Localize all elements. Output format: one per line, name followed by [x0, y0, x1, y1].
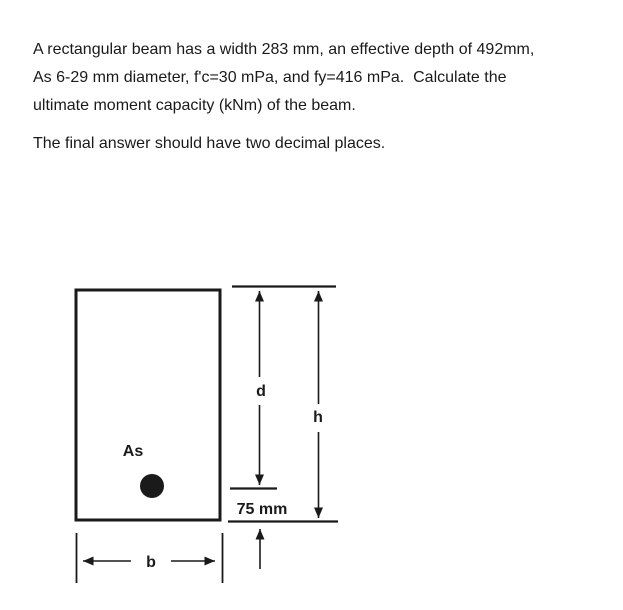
- beam-cross-section-figure: As d h 75 mm b: [0, 0, 623, 610]
- effective-depth-label: d: [256, 383, 266, 400]
- problem-page: A rectangular beam has a width 283 mm, a…: [0, 0, 623, 610]
- steel-area-label: As: [123, 443, 144, 460]
- overall-height-label: h: [313, 409, 323, 426]
- cover-label: 75 mm: [237, 501, 288, 518]
- rebar-dot: [140, 474, 164, 498]
- width-label: b: [146, 554, 156, 571]
